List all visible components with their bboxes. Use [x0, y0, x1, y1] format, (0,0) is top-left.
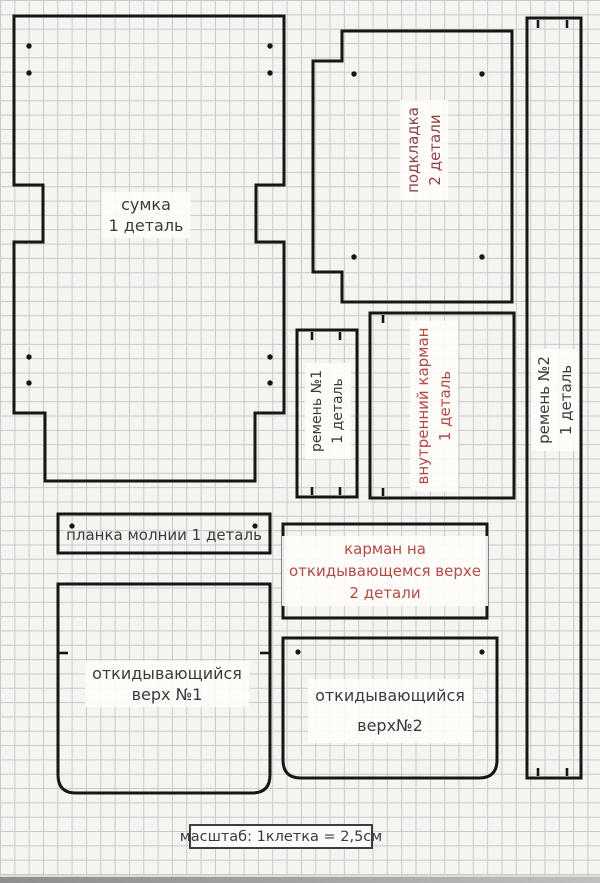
flap-pocket-label-line1: карман на: [289, 538, 481, 560]
scale-note-label: масштаб: 1клетка = 2,5см: [180, 829, 382, 845]
lining-drill-dot: [479, 254, 484, 259]
lining-drill-dot: [351, 71, 356, 76]
strap2-label-line2: 1 деталь: [555, 356, 577, 444]
flip-top2-label: откидывающийся верх№2: [308, 679, 472, 743]
lining-label-line2: 2 детали: [424, 107, 446, 193]
inner-pocket-label-line2: 1 деталь: [434, 328, 456, 485]
lining-label-line1: подкладка: [402, 107, 424, 193]
bag-drill-dot: [26, 354, 31, 359]
sewing-pattern-sheet: сумка 1 деталь подкладка 2 детали ремень…: [0, 0, 600, 883]
lining-label: подкладка 2 детали: [400, 100, 448, 200]
bag-drill-dot: [267, 43, 272, 48]
flip-top2-label-line2: верх№2: [315, 711, 465, 741]
zipper-placket-label: планка молнии 1 деталь: [66, 524, 262, 546]
bag-piece-outline: [14, 16, 284, 481]
flip-top2-label-line1: откидывающийся: [315, 681, 465, 711]
bag-drill-dot: [26, 43, 31, 48]
flip-top2-drill-dot: [295, 649, 300, 654]
bag-label: сумка 1 деталь: [102, 192, 191, 238]
flip-top1-label: откидывающийся верх №1: [85, 661, 249, 707]
strap2-label: ремень №2 1 деталь: [531, 349, 579, 451]
bag-drill-dot: [267, 70, 272, 75]
bag-drill-dot: [267, 380, 272, 385]
bag-drill-dot: [26, 380, 31, 385]
bag-label-line2: 1 деталь: [109, 215, 184, 236]
scan-edge-band: [0, 877, 600, 883]
lining-drill-dot: [351, 254, 356, 259]
flip-top1-label-line2: верх №1: [92, 684, 242, 705]
flip-top2-drill-dot: [479, 649, 484, 654]
scale-note-text: масштаб: 1клетка = 2,5см: [180, 829, 382, 845]
bag-label-line1: сумка: [109, 194, 184, 215]
flap-pocket-label-line2: откидывающемся верхе: [289, 560, 481, 582]
strap1-label-line1: ремень №1: [307, 370, 328, 452]
zipper-placket-label-line1: планка молнии 1 деталь: [66, 524, 262, 546]
strap1-label-line2: 1 деталь: [328, 370, 349, 452]
inner-pocket-label-line1: внутренний карман: [412, 328, 434, 485]
flap-pocket-label-line3: 2 детали: [289, 582, 481, 604]
strap1-label: ремень №1 1 деталь: [305, 363, 351, 459]
bag-drill-dot: [26, 70, 31, 75]
inner-pocket-label: внутренний карман 1 деталь: [410, 321, 458, 492]
flip-top1-label-line1: откидывающийся: [92, 663, 242, 684]
lining-drill-dot: [479, 71, 484, 76]
pattern-outlines-layer: [0, 0, 600, 883]
bag-drill-dot: [267, 354, 272, 359]
flap-pocket-label: карман на откидывающемся верхе 2 детали: [282, 536, 488, 606]
strap2-label-line1: ремень №2: [533, 356, 555, 444]
